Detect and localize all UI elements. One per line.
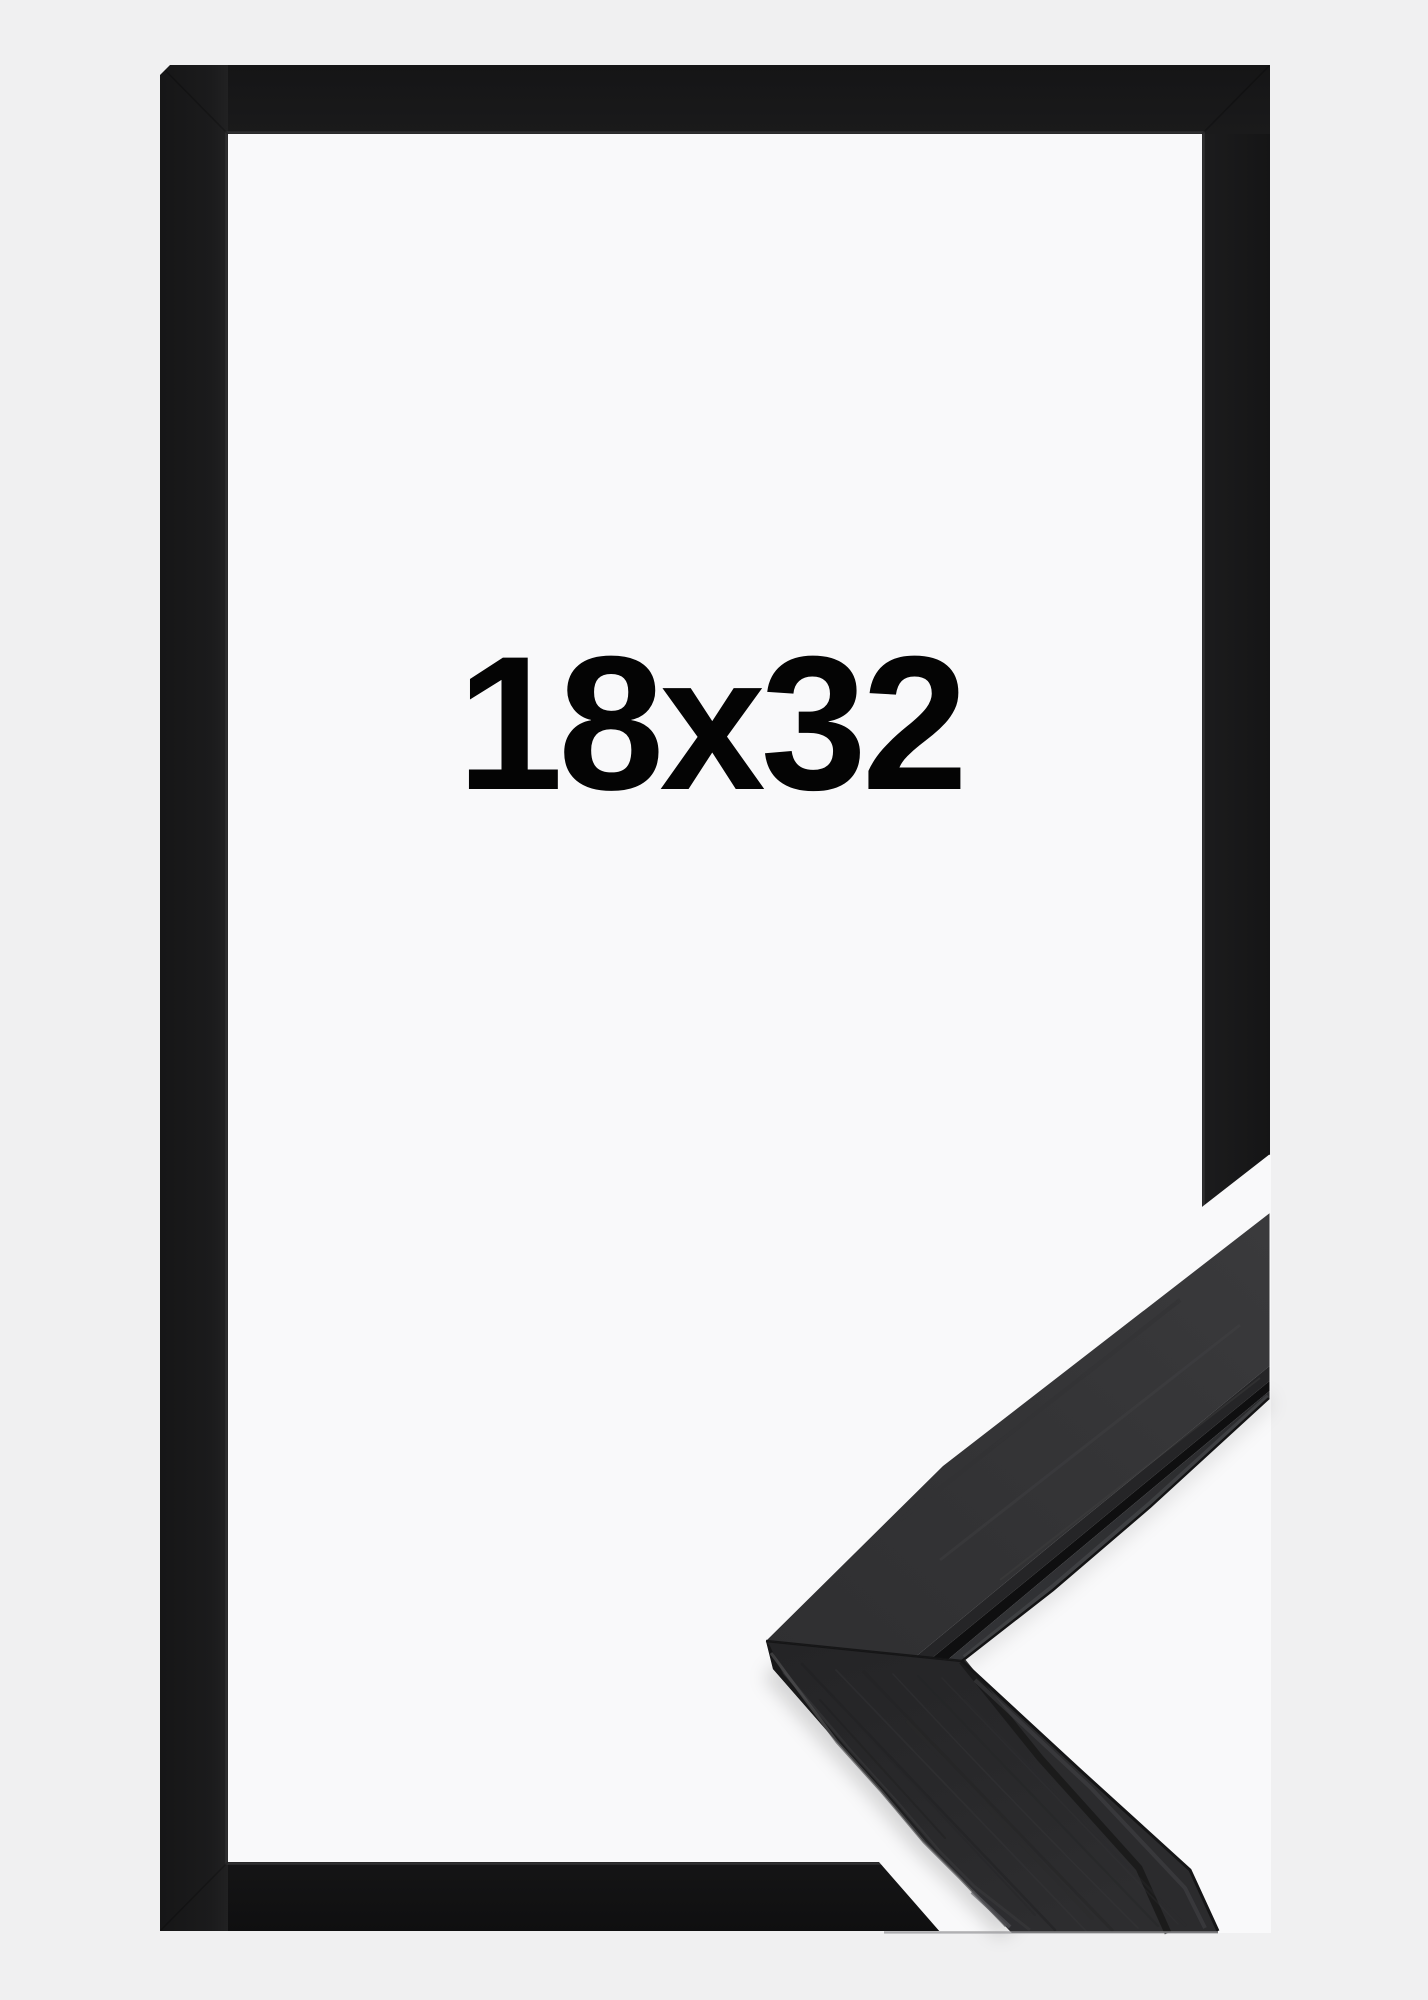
svg-text:18x32: 18x32	[457, 617, 963, 830]
